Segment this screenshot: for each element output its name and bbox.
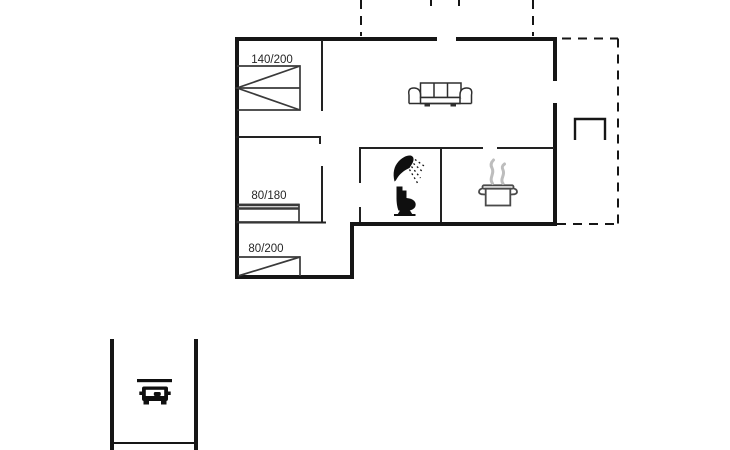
double-bed-icon	[237, 66, 300, 110]
shower-icon	[394, 155, 426, 183]
bench-icon	[575, 119, 605, 140]
house-exterior-walls	[237, 39, 555, 277]
bed1-size-label: 140/200	[251, 54, 293, 66]
cooking-pot-icon	[479, 185, 517, 205]
floor-plan-canvas: 140/200 80/180 80/200	[0, 0, 730, 450]
sofa-icon	[409, 83, 472, 107]
steam-icon	[491, 160, 504, 184]
floor-plan-drawing: 140/200 80/180 80/200	[0, 0, 730, 450]
toilet-icon	[394, 187, 416, 217]
single-bed-2-icon	[238, 257, 300, 276]
bed2-size-label: 80/180	[251, 190, 286, 202]
car-icon	[137, 379, 172, 405]
bed3-size-label: 80/200	[248, 243, 283, 255]
single-bed-1-icon	[237, 205, 299, 223]
